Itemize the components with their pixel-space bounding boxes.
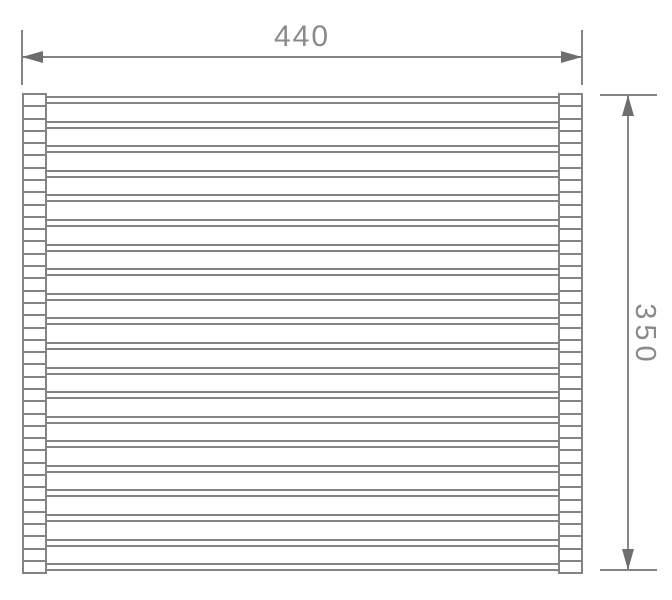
right-end-cap — [558, 560, 583, 574]
rack-front-view — [0, 0, 672, 600]
arrowhead-up-icon — [622, 95, 634, 116]
rod — [47, 539, 558, 547]
rod — [47, 317, 558, 325]
rod — [47, 244, 558, 252]
rod — [47, 293, 558, 301]
rod — [47, 440, 558, 448]
arrowhead-down-icon — [622, 549, 634, 570]
rod — [47, 194, 558, 202]
rod — [47, 563, 558, 571]
left-end-cap — [22, 560, 47, 574]
rod — [47, 219, 558, 227]
height-dimension-label: 350 — [630, 300, 660, 370]
rod — [47, 465, 558, 473]
rod — [47, 391, 558, 399]
rod — [47, 170, 558, 178]
rod — [47, 416, 558, 424]
rod — [47, 121, 558, 129]
rod — [47, 268, 558, 276]
technical-drawing-canvas: 440 350 — [0, 0, 672, 600]
rod — [47, 489, 558, 497]
rod — [47, 514, 558, 522]
rod — [47, 145, 558, 153]
rod — [47, 342, 558, 350]
rod — [47, 367, 558, 375]
rod — [47, 96, 558, 104]
